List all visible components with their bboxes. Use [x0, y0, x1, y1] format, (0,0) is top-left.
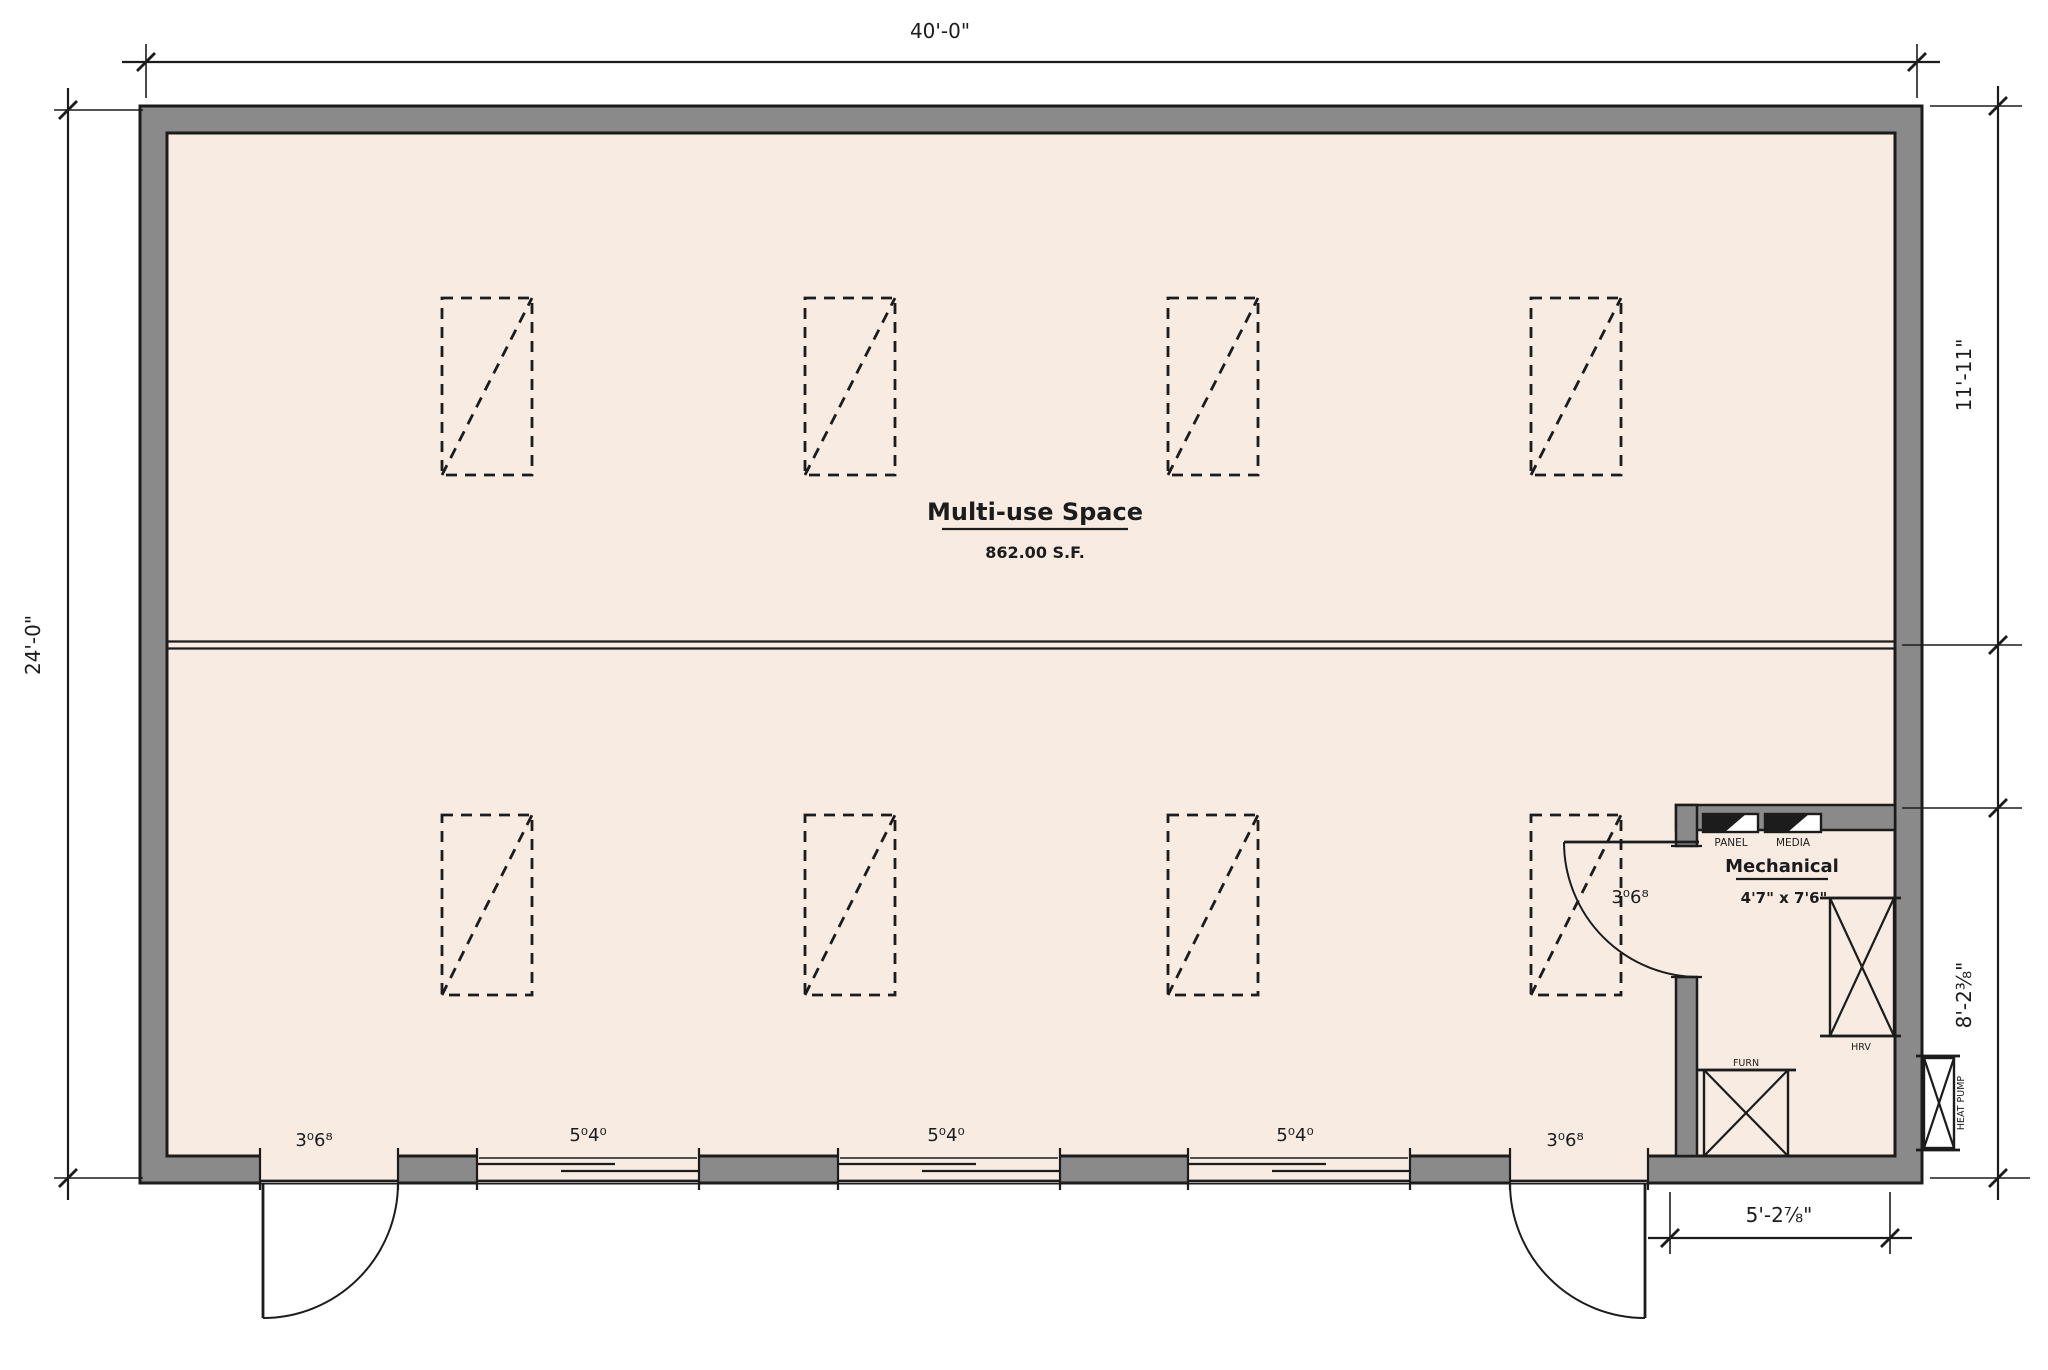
dim-overall-width-text: 40'-0"	[910, 19, 970, 43]
mech-room-name: Mechanical	[1725, 856, 1839, 877]
heat-pump-unit: HEAT PUMP	[1916, 1056, 1967, 1150]
dim-upper-depth-text: 11'-11"	[1952, 339, 1976, 412]
door-2: 3⁰6⁸	[1510, 1130, 1648, 1318]
door-size-label: 3⁰6⁸	[295, 1130, 332, 1151]
room-area: 862.00 S.F.	[985, 543, 1085, 562]
door-1: 3⁰6⁸	[260, 1130, 398, 1318]
heat-pump-label: HEAT PUMP	[1956, 1076, 1967, 1131]
dimension-mech-width: 5'-2⅞"	[1648, 1192, 1912, 1254]
hrv-unit: HRV	[1820, 898, 1901, 1053]
floor-area	[167, 133, 1895, 1156]
furnace-label: FURN	[1733, 1058, 1759, 1069]
dim-mech-width-text: 5'-2⅞"	[1746, 1203, 1813, 1227]
window-size-label: 5⁰4⁰	[927, 1125, 964, 1146]
dim-lower-depth-text: 8'-2⅜"	[1952, 962, 1976, 1029]
door-swing-arc	[263, 1183, 398, 1318]
mech-door-size-label: 3⁰6⁸	[1611, 887, 1648, 908]
mech-wall-left-lower	[1676, 977, 1697, 1156]
window-size-label: 5⁰4⁰	[569, 1125, 606, 1146]
hrv-label: HRV	[1851, 1042, 1871, 1053]
furnace-unit: FURN	[1696, 1058, 1796, 1156]
wall-left	[140, 133, 167, 1156]
door-size-label: 3⁰6⁸	[1546, 1130, 1583, 1151]
floor-plan-drawing: Multi-use Space 862.00 S.F. 3⁰6⁸ 5⁰4⁰ 5⁰…	[0, 0, 2048, 1370]
dim-overall-depth-text: 24'-0"	[21, 615, 45, 675]
media-label: MEDIA	[1776, 837, 1811, 849]
door-swing-arc	[1510, 1183, 1645, 1318]
window-size-label: 5⁰4⁰	[1276, 1125, 1313, 1146]
wall-top	[140, 106, 1922, 133]
dimension-overall-width: 40'-0"	[122, 19, 1940, 98]
mech-wall-left-upper	[1676, 805, 1697, 846]
room-name: Multi-use Space	[927, 498, 1143, 526]
panel-label: PANEL	[1714, 837, 1747, 849]
dimension-overall-depth: 24'-0"	[21, 88, 143, 1200]
floor-plan-sheet: Multi-use Space 862.00 S.F. 3⁰6⁸ 5⁰4⁰ 5⁰…	[0, 0, 2048, 1370]
mech-room-size: 4'7" x 7'6"	[1741, 889, 1828, 907]
